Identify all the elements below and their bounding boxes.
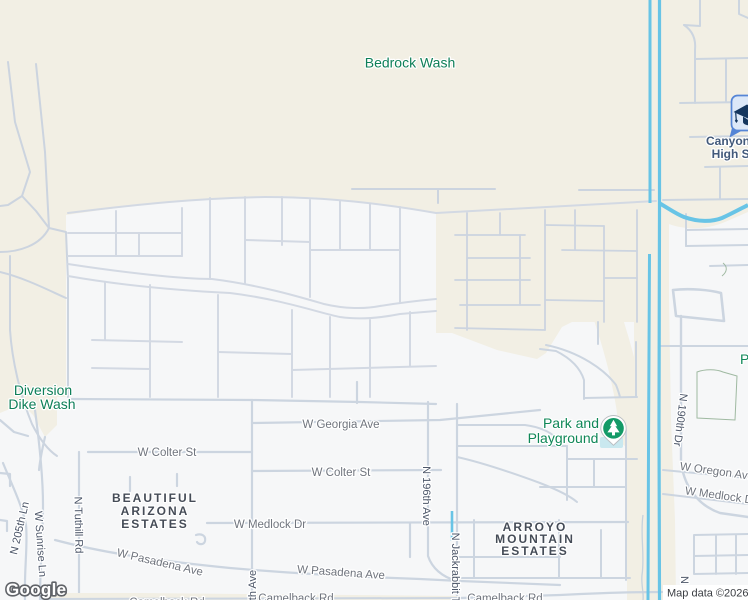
svg-text:th Ave: th Ave (247, 570, 259, 600)
svg-text:Canyon: Canyon (706, 134, 748, 148)
svg-text:High Sc: High Sc (712, 147, 748, 161)
svg-text:Bedrock Wash: Bedrock Wash (365, 55, 456, 71)
svg-text:ARIZONA: ARIZONA (121, 504, 190, 518)
svg-text:Google: Google (6, 580, 66, 599)
svg-text:W Medlock Dr: W Medlock Dr (234, 519, 306, 531)
svg-text:P: P (740, 351, 748, 367)
svg-text:ESTATES: ESTATES (121, 517, 189, 531)
svg-text:Dike Wash: Dike Wash (8, 396, 75, 412)
svg-text:Map data ©2026: Map data ©2026 (667, 588, 748, 600)
svg-text:Playground: Playground (528, 430, 599, 446)
svg-text:N Tuthill Rd: N Tuthill Rd (72, 496, 85, 553)
svg-text:N Jackrabbit T: N Jackrabbit T (449, 533, 461, 600)
svg-text:ESTATES: ESTATES (501, 544, 569, 558)
svg-text:BEAUTIFUL: BEAUTIFUL (112, 491, 198, 505)
svg-text:Camelback Rd: Camelback Rd (258, 593, 333, 600)
svg-text:Park and: Park and (543, 415, 599, 431)
svg-text:N 196th Ave: N 196th Ave (420, 466, 432, 526)
svg-text:W Colter St: W Colter St (138, 447, 198, 459)
svg-text:W Georgia Ave: W Georgia Ave (302, 419, 379, 431)
svg-text:N: N (678, 576, 690, 584)
svg-text:W Colter St: W Colter St (312, 467, 372, 479)
svg-text:Camelback Rd: Camelback Rd (467, 593, 542, 600)
